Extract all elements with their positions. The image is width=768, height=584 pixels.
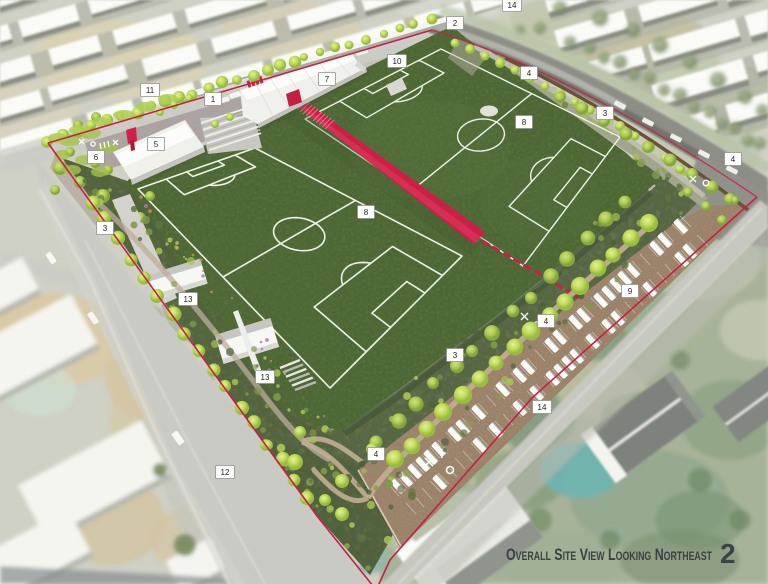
svg-text:4: 4	[374, 450, 379, 459]
svg-text:8: 8	[364, 208, 369, 217]
svg-text:4: 4	[527, 69, 532, 78]
svg-text:7: 7	[325, 75, 330, 84]
svg-text:14: 14	[538, 403, 547, 412]
svg-text:9: 9	[628, 287, 633, 296]
svg-text:13: 13	[184, 295, 193, 304]
svg-text:Overall Site View Looking Nort: Overall Site View Looking Northeast	[506, 545, 712, 564]
svg-text:12: 12	[221, 468, 230, 477]
svg-text:14: 14	[508, 1, 517, 10]
svg-text:3: 3	[103, 224, 108, 233]
svg-text:4: 4	[544, 317, 549, 326]
svg-text:3: 3	[603, 109, 608, 118]
svg-text:1: 1	[211, 95, 216, 104]
svg-text:8: 8	[522, 118, 527, 127]
svg-text:2: 2	[720, 538, 736, 569]
svg-text:6: 6	[94, 153, 99, 162]
svg-text:4: 4	[731, 155, 736, 164]
svg-text:11: 11	[146, 86, 155, 95]
svg-text:5: 5	[154, 140, 159, 149]
svg-text:3: 3	[453, 351, 458, 360]
svg-text:2: 2	[453, 19, 458, 28]
svg-text:13: 13	[261, 373, 270, 382]
svg-text:10: 10	[393, 57, 402, 66]
